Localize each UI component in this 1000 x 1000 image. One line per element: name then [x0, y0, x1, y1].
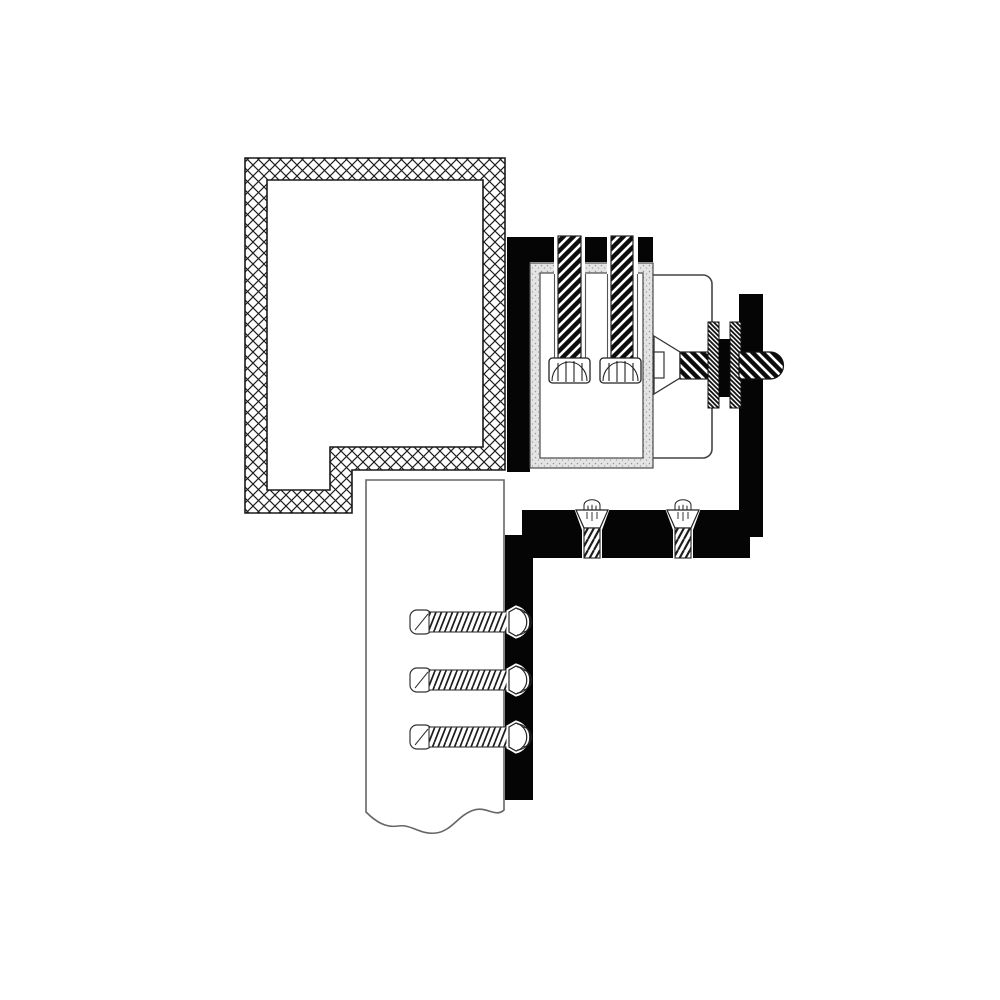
cap-screw-right-shaft — [611, 236, 633, 360]
spindle-shank — [680, 352, 710, 379]
cap-screw-left-shaft — [558, 236, 581, 360]
bottom-plate — [522, 510, 763, 558]
assembly-cross-section-diagram — [0, 0, 1000, 1000]
washer-inner — [708, 322, 719, 408]
through-bolt — [739, 352, 784, 379]
door-panel — [366, 480, 504, 833]
wood-screw-middle — [410, 666, 532, 694]
wood-screw-top — [410, 608, 532, 636]
cap-screw-left-head — [549, 358, 590, 383]
spindle-hub — [654, 352, 664, 378]
side-plate — [739, 294, 763, 537]
wood-screw-bottom — [410, 723, 532, 751]
diagram-canvas — [0, 0, 1000, 1000]
cap-screw-right-head — [600, 358, 641, 383]
